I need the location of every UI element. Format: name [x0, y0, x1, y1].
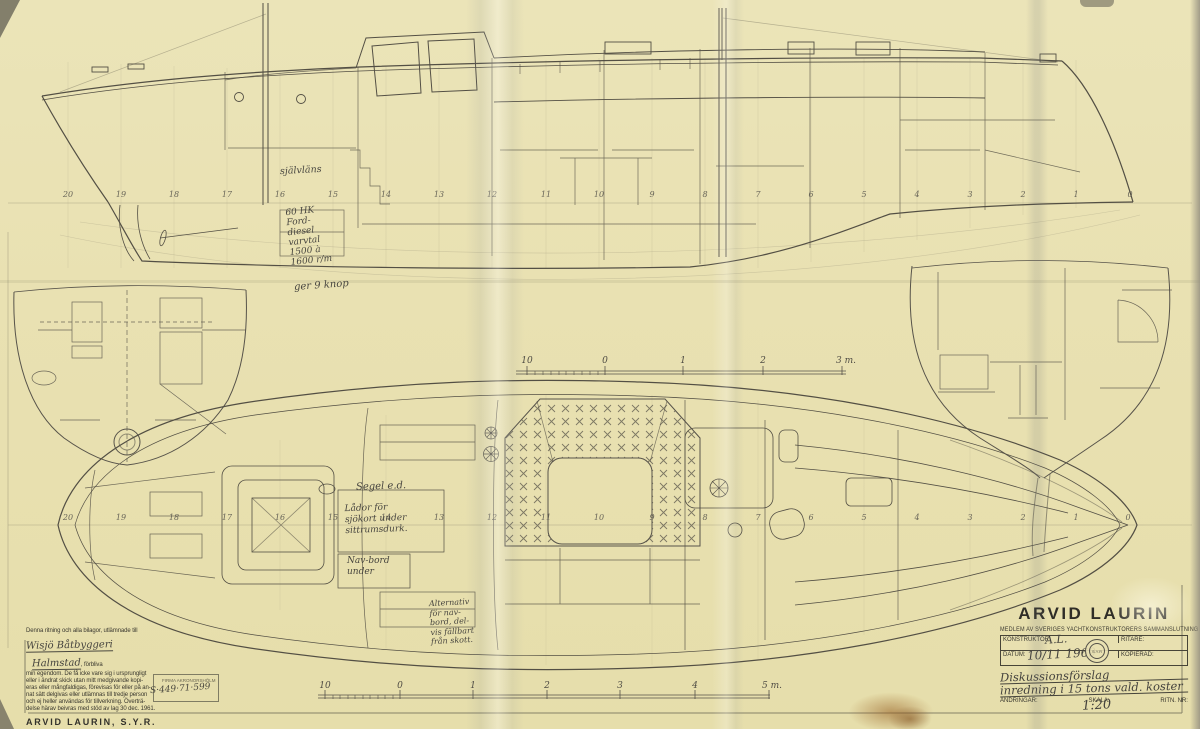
- scale-label: 2: [544, 681, 550, 691]
- station-number: 18: [169, 513, 179, 522]
- stain: [1112, 578, 1190, 634]
- legal-body: min egendom. De få icke vare sig i urspr…: [26, 671, 166, 713]
- station-number: 5: [861, 190, 866, 199]
- legal-block: Denna ritning och alla bilagor, utlämnad…: [26, 628, 166, 727]
- station-number: 8: [702, 190, 707, 199]
- station-number: 8: [702, 513, 707, 522]
- station-number: 4: [914, 513, 919, 522]
- stain: [888, 706, 932, 729]
- station-number: 2: [1020, 190, 1025, 199]
- annotation-engine: 60 HK Ford- diesel varvtal 1500 à 1600 r…: [285, 204, 333, 268]
- station-number: 7: [755, 513, 760, 522]
- recipient-city: Halmstad: [32, 659, 81, 671]
- station-number: 5: [861, 513, 866, 522]
- station-number: 16: [275, 190, 285, 199]
- title-block-fields: KONSTRUKTÖR: RITARE: DATUM: KOPIERAD: A.…: [1000, 635, 1188, 666]
- station-number: 1: [1073, 190, 1078, 199]
- annotation-segel: Segel e.d.: [356, 480, 407, 493]
- station-number: 9: [649, 190, 654, 199]
- station-number: 3: [967, 513, 972, 522]
- scale-label: 1: [680, 356, 686, 366]
- ritn-nr-label: RITN. NR:: [1160, 698, 1188, 704]
- station-number: 16: [275, 513, 285, 522]
- station-number: 11: [541, 513, 551, 522]
- scale-label: 0: [397, 681, 403, 691]
- station-number: 18: [169, 190, 179, 199]
- blueprint-sheet: 20 19 18 17 16 15 14 13 12 11 10 9 8 7 6…: [0, 0, 1200, 729]
- station-number: 6: [808, 190, 813, 199]
- stamp-handwriting: S·449·71·599: [150, 682, 211, 696]
- receipt-stamp: FIRMA AKRONORSHÖLM S·449·71·599: [153, 674, 219, 702]
- drawing-title-line2: inredning i 15 tons vald. koster: [1000, 680, 1188, 698]
- scale-label: 10: [319, 681, 330, 691]
- annotation-sjalvlans: självläns: [280, 164, 322, 177]
- annotation-lador: Lådor för sjökort under sittrumsdurk.: [344, 502, 407, 537]
- station-number: 0: [1125, 513, 1130, 522]
- station-number: 19: [116, 513, 126, 522]
- corner-shadow: [0, 699, 14, 729]
- station-number: 0: [1127, 190, 1132, 199]
- section-view-aft: [14, 286, 247, 465]
- station-number: 20: [63, 513, 73, 522]
- station-number: 4: [914, 190, 919, 199]
- sheet-edge-shadow: [1190, 0, 1200, 729]
- scale-label: 3 m.: [836, 356, 856, 366]
- scale-value: 1:20: [1082, 697, 1112, 714]
- station-number: 13: [434, 190, 444, 199]
- scale-label: 1: [470, 681, 476, 691]
- scale-label: 5 m.: [762, 681, 782, 691]
- scale-label: 4: [692, 681, 698, 691]
- kopierad-label: KOPIERAD:: [1118, 651, 1187, 658]
- signature-line: ARVID LAURIN, S.Y.R.: [26, 717, 166, 727]
- scale-label: 10: [521, 356, 532, 366]
- station-number: 17: [222, 190, 232, 199]
- sheet-edge-shadow: [1080, 0, 1114, 7]
- section-view-mid: [910, 261, 1172, 557]
- recipient-name: Wisjö Båtbyggeri: [26, 640, 113, 653]
- station-number: 11: [541, 190, 551, 199]
- station-number: 19: [116, 190, 126, 199]
- annotation-alternativ: Alternativ för nav- bord, del- vis fällb…: [429, 597, 475, 647]
- station-number: 6: [808, 513, 813, 522]
- syr-seal: S.Y.R: [1085, 639, 1109, 663]
- station-number: 3: [967, 190, 972, 199]
- station-number: 13: [434, 513, 444, 522]
- annotation-navbord: Nav-bord under: [347, 556, 390, 578]
- station-number: 14: [381, 190, 391, 199]
- station-number: 9: [649, 513, 654, 522]
- station-number: 15: [328, 190, 338, 199]
- scale-label: 2: [760, 356, 766, 366]
- konstruktor-value: A.L.: [1045, 632, 1068, 647]
- scale-label: 0: [602, 356, 608, 366]
- legal-after-recipient: , förbliva: [81, 662, 103, 668]
- andringar-label: ÄNDRINGAR:: [1000, 698, 1038, 704]
- station-number: 2: [1020, 513, 1025, 522]
- horizontal-crease: [0, 280, 1200, 283]
- station-number: 1: [1073, 513, 1078, 522]
- station-number: 12: [487, 190, 497, 199]
- station-number: 7: [755, 190, 760, 199]
- station-number: 20: [63, 190, 73, 199]
- construction-lines: [8, 58, 1192, 665]
- corner-shadow: [0, 0, 20, 38]
- scale-label: 3: [617, 681, 623, 691]
- station-number: 15: [328, 513, 338, 522]
- station-number: 10: [594, 513, 604, 522]
- station-number: 17: [222, 513, 232, 522]
- station-number: 12: [487, 513, 497, 522]
- profile-view: [42, 3, 1133, 268]
- ritare-label: RITARE:: [1118, 636, 1187, 643]
- legal-intro: Denna ritning och alla bilagor, utlämnad…: [26, 628, 166, 635]
- station-number: 10: [594, 190, 604, 199]
